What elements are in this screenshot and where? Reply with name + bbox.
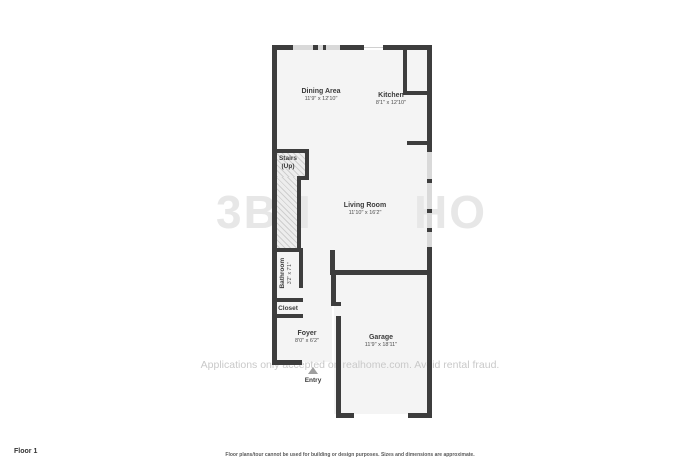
floor-number-label: Floor 1 [14, 448, 37, 455]
wall-garage-top [330, 270, 432, 275]
room-dims: 3'2" x 7'1" [287, 238, 293, 308]
window-mullion [323, 45, 326, 50]
wall-kitchen-nook-vertical [403, 50, 407, 95]
room-name: Stairs [266, 155, 310, 163]
wall-foyer-bottom [272, 360, 302, 365]
room-dims: 8'1" x 12'10" [351, 100, 431, 107]
room-name: Bathroom [279, 238, 287, 308]
room-label-garage: Garage 11'9" x 18'11" [341, 334, 421, 350]
watermark-logo-fragment-right: HO [414, 189, 487, 235]
room-dims: 8'0" x 6'2" [277, 338, 337, 345]
room-name: Garage [341, 334, 421, 342]
wall-stairs-top [272, 149, 309, 153]
room-label-dining-area: Dining Area 11'9" x 12'10" [281, 88, 361, 104]
wall-bathroom-right [299, 248, 303, 288]
room-dims: 11'9" x 18'11" [341, 342, 421, 349]
fraud-watermark-text: Applications only accepted on realhome.c… [190, 360, 510, 372]
room-label-living-room: Living Room 11'10" x 16'2" [325, 202, 405, 218]
entry-arrow-icon [308, 367, 318, 374]
entry-label: Entry [288, 377, 338, 384]
room-label-bathroom: Bathroom 3'2" x 7'1" [279, 238, 293, 308]
wall-garage-door-jog [331, 302, 341, 306]
room-name-line2: (Up) [266, 163, 310, 171]
wall-garage-bottom-right-stub [408, 413, 432, 418]
wall-kitchen-living-divider [407, 141, 432, 145]
room-name: Kitchen [351, 92, 431, 100]
room-label-kitchen: Kitchen 8'1" x 12'10" [351, 92, 431, 108]
wall-stairs-right-lower [297, 176, 301, 252]
room-label-foyer: Foyer 8'0" x 6'2" [277, 330, 337, 346]
watermark-logo-fragment-left: 3B [216, 189, 279, 235]
door-threshold-line [364, 47, 383, 48]
window-mullion [427, 179, 432, 183]
window-mullion [313, 45, 318, 50]
room-name: Dining Area [281, 88, 361, 96]
window-right [427, 152, 432, 247]
room-label-closet: Closet [266, 305, 310, 313]
window-mullion [427, 228, 432, 232]
floorplan-canvas: 3B I HO Applications only accepted on re… [0, 0, 700, 467]
window-mullion [427, 209, 432, 213]
room-name: Foyer [277, 330, 337, 338]
wall-closet-bottom [272, 314, 303, 318]
wall-garage-bottom-left-stub [336, 413, 354, 418]
room-dims: 11'10" x 16'2" [325, 210, 405, 217]
room-label-stairs: Stairs (Up) [266, 155, 310, 171]
room-name: Closet [266, 305, 310, 313]
room-name: Living Room [325, 202, 405, 210]
disclaimer-text: Floor plans/tour cannot be used for buil… [150, 452, 550, 458]
room-dims: 11'9" x 12'10" [281, 96, 361, 103]
